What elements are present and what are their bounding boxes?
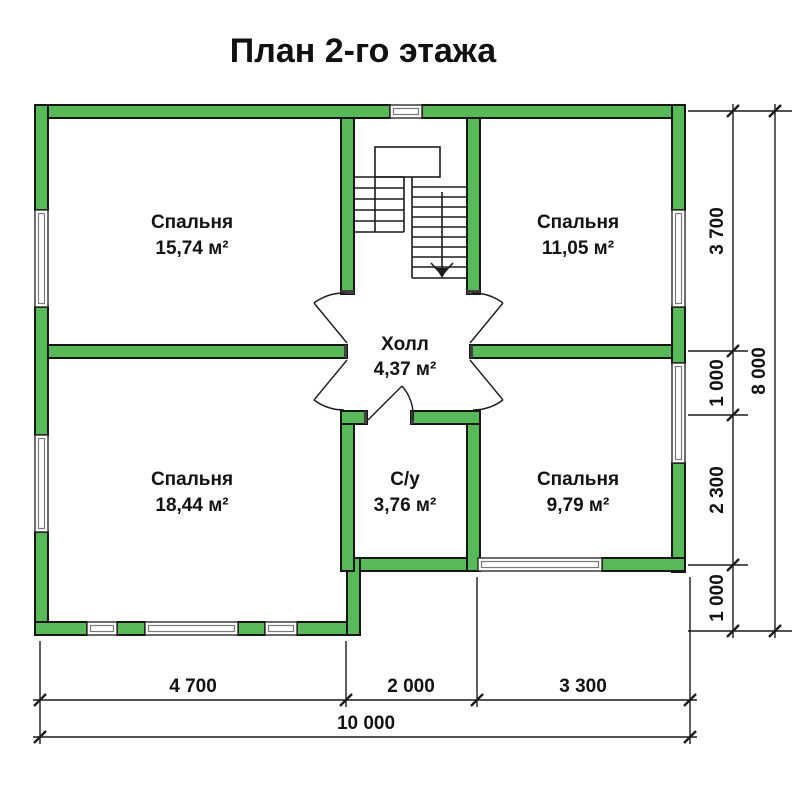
stair-arrow-tip (436, 268, 448, 278)
wall-bath-left (341, 411, 354, 571)
window-bottom-left-3 (265, 622, 297, 635)
room-name: С/у (390, 469, 420, 490)
room-name: Спальня (537, 212, 619, 233)
room-area: 4,37 м² (374, 359, 437, 380)
room-name: Спальня (151, 212, 233, 233)
room-area: 18,44 м² (155, 495, 228, 516)
room-label-bedroom-bottom-left: Спальня 18,44 м² (151, 469, 233, 516)
room-area: 15,74 м² (155, 238, 228, 259)
stair-landing (375, 147, 440, 177)
window-bottom-left-1 (87, 622, 117, 635)
room-label-bedroom-bottom-right: Спальня 9,79 м² (537, 469, 619, 516)
door-bathroom (368, 386, 413, 420)
window-bottom-left-2 (145, 622, 238, 635)
windows (35, 105, 685, 635)
wall-top-east (422, 105, 685, 118)
wall-bath-top-east-stub (411, 411, 480, 424)
room-label-bathroom: С/у 3,76 м² (374, 469, 437, 516)
floor-plan: Спальня 15,74 м² Спальня 11,05 м² Холл 4… (0, 0, 800, 799)
wall-left-upper (35, 105, 48, 210)
room-labels: Спальня 15,74 м² Спальня 11,05 м² Холл 4… (151, 212, 619, 516)
walls (35, 105, 685, 635)
dim-right-2: 1 000 (707, 359, 728, 407)
door-bedroom-bottom-left (314, 360, 347, 410)
stair-treads-left (354, 177, 404, 232)
dim-bottom-1: 4 700 (169, 676, 217, 697)
window-left-upper (35, 210, 48, 307)
wall-stair-right (467, 118, 480, 294)
wall-stair-left (341, 118, 354, 294)
room-area: 11,05 м² (542, 238, 614, 259)
dim-right-1: 3 700 (707, 207, 728, 255)
wall-middle-west (48, 345, 347, 358)
room-label-bedroom-top-right: Спальня 11,05 м² (537, 212, 619, 259)
room-label-bedroom-top-left: Спальня 15,74 м² (151, 212, 233, 259)
window-top-stairs (390, 105, 422, 118)
dim-bottom-total: 10 000 (337, 713, 395, 734)
dim-bottom-2: 2 000 (387, 676, 435, 697)
dim-bottom-3: 3 300 (559, 676, 607, 697)
window-left-lower (35, 435, 48, 532)
extension-lines-right (688, 111, 792, 631)
wall-right-upper (672, 105, 685, 210)
wall-end-cap (470, 345, 473, 358)
wall-bath-top-west-stub (341, 411, 367, 424)
wall-end-cap (364, 411, 367, 424)
stair-treads-right (412, 187, 467, 278)
wall-end-cap (344, 345, 347, 358)
dimension-chain-right: 3 700 1 000 2 300 1 000 8 000 (688, 104, 792, 638)
stair-direction-arrow (431, 192, 453, 275)
room-area: 9,79 м² (547, 495, 610, 516)
wall-right-mid (672, 307, 685, 363)
room-name: Спальня (537, 469, 619, 490)
dimension-chain-bottom: 4 700 2 000 3 300 10 000 (33, 577, 697, 744)
wall-bath-right (467, 411, 480, 571)
door-bedroom-bottom-right (470, 360, 503, 410)
window-right-mid (672, 363, 685, 463)
room-name: Холл (381, 334, 429, 355)
window-bottom-right (478, 558, 602, 571)
window-right-upper (672, 210, 685, 307)
wall-left-lower (35, 532, 48, 635)
door-bedroom-top-right (470, 293, 503, 343)
wall-left-mid (35, 307, 48, 435)
dim-right-3: 2 300 (707, 466, 728, 514)
room-label-hall: Холл 4,37 м² (374, 334, 437, 380)
wall-bottom-right-east (602, 558, 685, 571)
wall-bottom-left-1 (35, 622, 87, 635)
staircase (354, 147, 467, 278)
wall-bottom-left-3 (238, 622, 265, 635)
room-name: Спальня (151, 469, 233, 490)
wall-right-lower (672, 463, 685, 572)
stair-divider (404, 177, 412, 278)
dim-right-total: 8 000 (749, 347, 770, 395)
wall-bottom-left-2 (117, 622, 145, 635)
room-area: 3,76 м² (374, 495, 437, 516)
wall-top-west (35, 105, 390, 118)
wall-middle-east (470, 345, 672, 358)
dim-right-4: 1 000 (707, 574, 728, 622)
wall-bottom-right-west (342, 558, 478, 571)
door-bedroom-top-left (314, 293, 347, 343)
